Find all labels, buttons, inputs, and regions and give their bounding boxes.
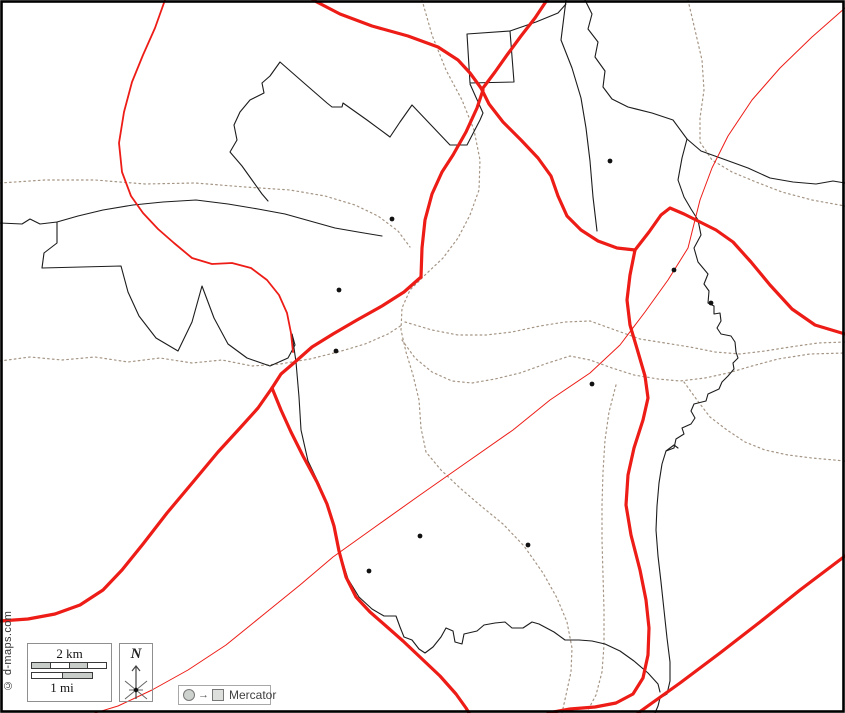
boundary-dotted-path xyxy=(0,180,410,247)
boundary-black-path xyxy=(561,0,597,231)
road-major-path xyxy=(635,208,845,334)
scale-bar: 2 km 1 mi xyxy=(27,643,112,702)
layer-road-major xyxy=(0,0,845,713)
road-medium-path xyxy=(119,0,293,352)
boundary-black-path xyxy=(292,334,660,692)
settlement-dot xyxy=(418,534,423,539)
projection-legend: → Mercator xyxy=(178,685,271,705)
road-major-path xyxy=(272,388,469,713)
map-frame xyxy=(2,2,844,712)
road-major-path xyxy=(483,0,547,88)
boundary-black-path xyxy=(42,266,295,366)
boundary-black-path xyxy=(510,4,566,31)
boundary-black-path xyxy=(585,0,845,184)
boundary-dotted-path xyxy=(401,0,572,713)
boundary-black-path xyxy=(666,445,678,451)
projection-label: Mercator xyxy=(229,688,276,702)
layer-boundary-black xyxy=(0,0,845,713)
scale-km-segments xyxy=(31,662,107,669)
scale-mi-segments xyxy=(31,672,93,679)
scale-mi-label: 1 mi xyxy=(28,680,96,695)
settlement-dot xyxy=(337,288,342,293)
settlement-dot xyxy=(590,382,595,387)
map-canvas[interactable] xyxy=(0,0,845,713)
layer-road-thin xyxy=(95,8,845,713)
scale-km-label: 2 km xyxy=(28,646,111,661)
compass-north-label: N xyxy=(120,646,152,662)
boundary-black-path xyxy=(230,62,483,201)
boundary-dotted-path xyxy=(588,385,616,710)
layer-boundary-dotted xyxy=(0,0,845,713)
road-major-path xyxy=(421,90,483,277)
compass-needle-icon xyxy=(120,662,152,700)
road-major-path xyxy=(481,88,635,250)
road-thin-path xyxy=(95,8,845,713)
settlement-dot xyxy=(709,301,714,306)
scale-segment-white xyxy=(31,672,63,679)
scale-segment-white xyxy=(87,662,107,669)
settlement-dot xyxy=(367,569,372,574)
scale-segment-gray xyxy=(69,662,89,669)
projection-arrow-icon: → xyxy=(198,690,209,700)
road-major-path xyxy=(548,250,649,713)
boundary-dotted-path xyxy=(402,340,845,383)
boundary-black-path xyxy=(655,139,738,713)
map-attribution: © d-maps.com xyxy=(2,592,17,710)
scale-segment-white xyxy=(50,662,70,669)
boundary-dotted-path xyxy=(405,321,845,354)
road-major-path xyxy=(313,0,481,88)
road-major-path xyxy=(0,388,272,621)
sphere-icon xyxy=(183,689,195,701)
boundary-dotted-path xyxy=(688,0,845,206)
compass: N xyxy=(119,643,153,702)
road-major-path xyxy=(638,556,845,713)
settlement-dot xyxy=(608,159,613,164)
map-viewport: © d-maps.com 2 km 1 mi N → Mercator xyxy=(0,0,845,713)
settlement-dot xyxy=(334,349,339,354)
settlement-dot xyxy=(526,543,531,548)
settlement-dot xyxy=(390,217,395,222)
layer-road-medium xyxy=(119,0,293,352)
settlement-dot xyxy=(672,268,677,273)
boundary-black-path xyxy=(42,222,57,268)
boundary-dotted-path xyxy=(0,325,402,366)
road-major-path xyxy=(272,277,421,388)
scale-segment-gray xyxy=(62,672,94,679)
scale-segment-gray xyxy=(31,662,51,669)
plane-icon xyxy=(212,689,224,701)
